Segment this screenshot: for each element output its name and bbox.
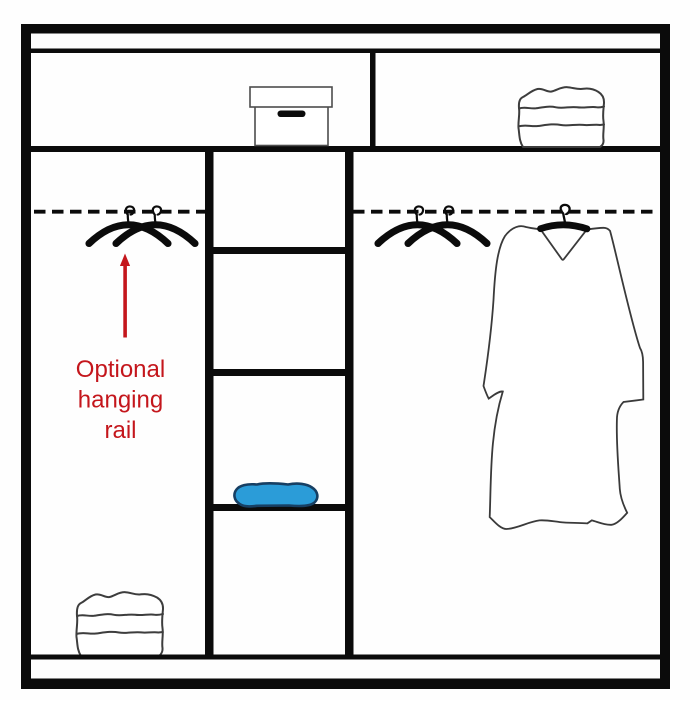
svg-text:rail: rail (104, 417, 136, 444)
svg-text:Optional: Optional (76, 356, 165, 383)
svg-text:hanging: hanging (78, 387, 163, 414)
